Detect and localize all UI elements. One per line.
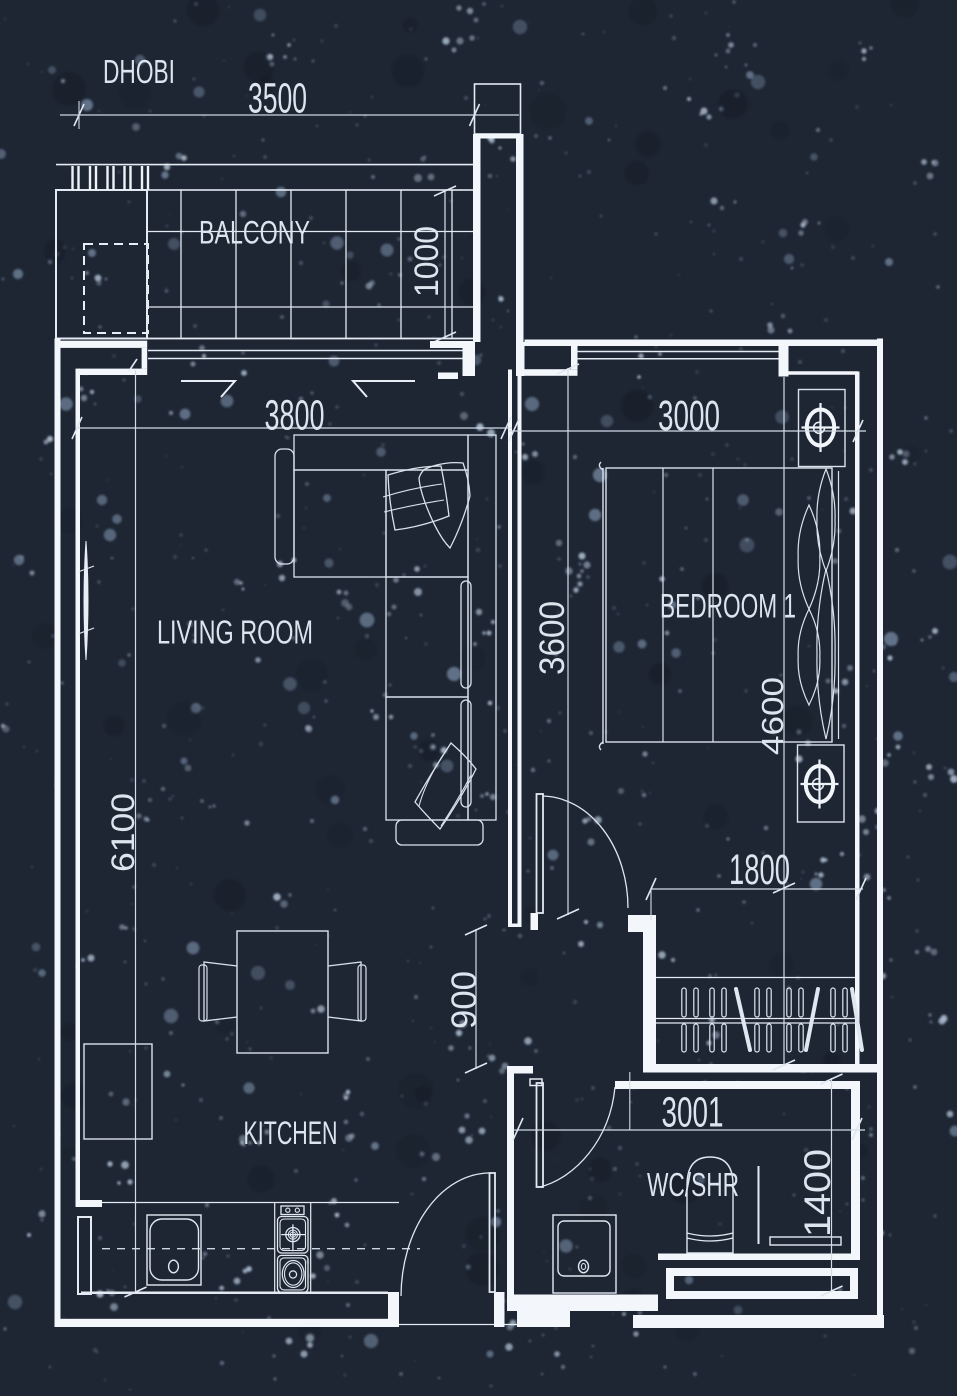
svg-text:BEDROOM 1: BEDROOM 1: [660, 588, 796, 626]
svg-text:1000: 1000: [408, 226, 446, 297]
svg-text:3000: 3000: [658, 392, 720, 440]
svg-text:BALCONY: BALCONY: [199, 215, 310, 251]
svg-text:DHOBI: DHOBI: [103, 53, 175, 90]
svg-text:WC/SHR: WC/SHR: [647, 1166, 739, 1203]
svg-text:900: 900: [445, 971, 484, 1029]
svg-text:4600: 4600: [755, 677, 790, 755]
svg-text:3800: 3800: [265, 392, 325, 440]
svg-text:1800: 1800: [729, 846, 790, 894]
svg-text:3001: 3001: [662, 1089, 724, 1137]
svg-text:KITCHEN: KITCHEN: [244, 1115, 338, 1151]
svg-text:3600: 3600: [533, 601, 572, 675]
svg-text:1400: 1400: [797, 1149, 838, 1237]
svg-text:6100: 6100: [105, 793, 141, 872]
svg-text:LIVING ROOM: LIVING ROOM: [157, 614, 313, 651]
svg-text:3500: 3500: [248, 75, 307, 123]
